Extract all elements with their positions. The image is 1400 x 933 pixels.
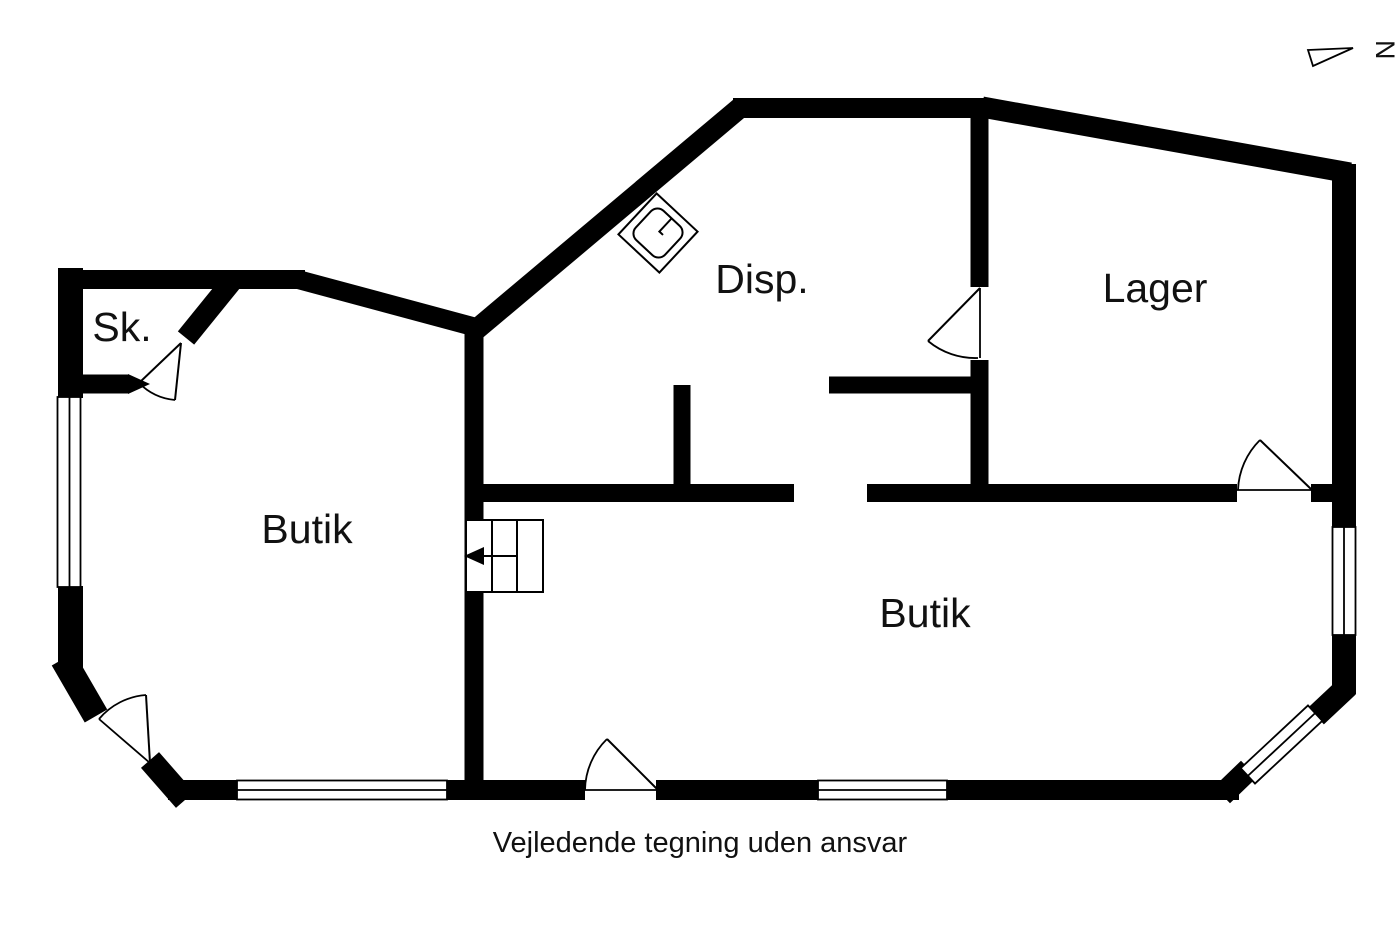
room-label-disp: Disp. [715,256,808,302]
window-right [1333,527,1356,635]
outer-walls [58,106,1350,800]
wall-br-diagonal-upper [1316,686,1348,716]
wall-bl-diagonal-lower [150,760,185,800]
room-label-lager: Lager [1103,265,1208,311]
room-label-sk: Sk. [92,304,151,350]
north-label: N [1370,40,1400,60]
door-bl-closed [99,719,150,763]
interior-walls [58,100,1335,800]
door-lager-arc [1238,440,1260,490]
windows [58,397,1356,800]
room-labels: Sk. Butik Disp. Lager Butik [92,256,1207,636]
door-sk-open [175,343,181,400]
door-sk [139,343,181,400]
wall-topright-diagonal [982,107,1350,173]
caption: Vejledende tegning uden ansvar [493,827,908,859]
door-disp-arc [928,341,978,358]
room-label-butik-right: Butik [879,590,971,636]
window-diagonal [1241,705,1323,783]
window-bottom-right [818,781,947,800]
window-bottom-left [237,781,447,800]
door-bottom-center [583,739,658,790]
door-bc-arc [585,739,607,790]
door-bottom-left [99,695,150,763]
window-left [58,397,81,587]
room-label-butik-left: Butik [261,506,353,552]
door-bl-leaf [146,695,150,763]
door-disp-leaf [928,288,980,341]
wall-topleft-diagonal [298,280,482,330]
door-disp [928,288,980,358]
floor-plan-page: N Sk. Butik Disp. Lager Butik Vejledende… [0,0,1400,933]
door-lager-leaf [1260,440,1312,490]
wall-ne-diagonal [471,106,742,334]
door-bc-leaf [607,739,658,790]
stairs [464,520,543,592]
door-bl-arc [99,695,146,719]
door-lager [1236,440,1312,490]
wall-bl-diagonal-upper [63,659,96,716]
north-arrow-icon: N [1308,40,1400,66]
floor-plan-svg: N Sk. Butik Disp. Lager Butik Vejledende… [0,0,1400,933]
